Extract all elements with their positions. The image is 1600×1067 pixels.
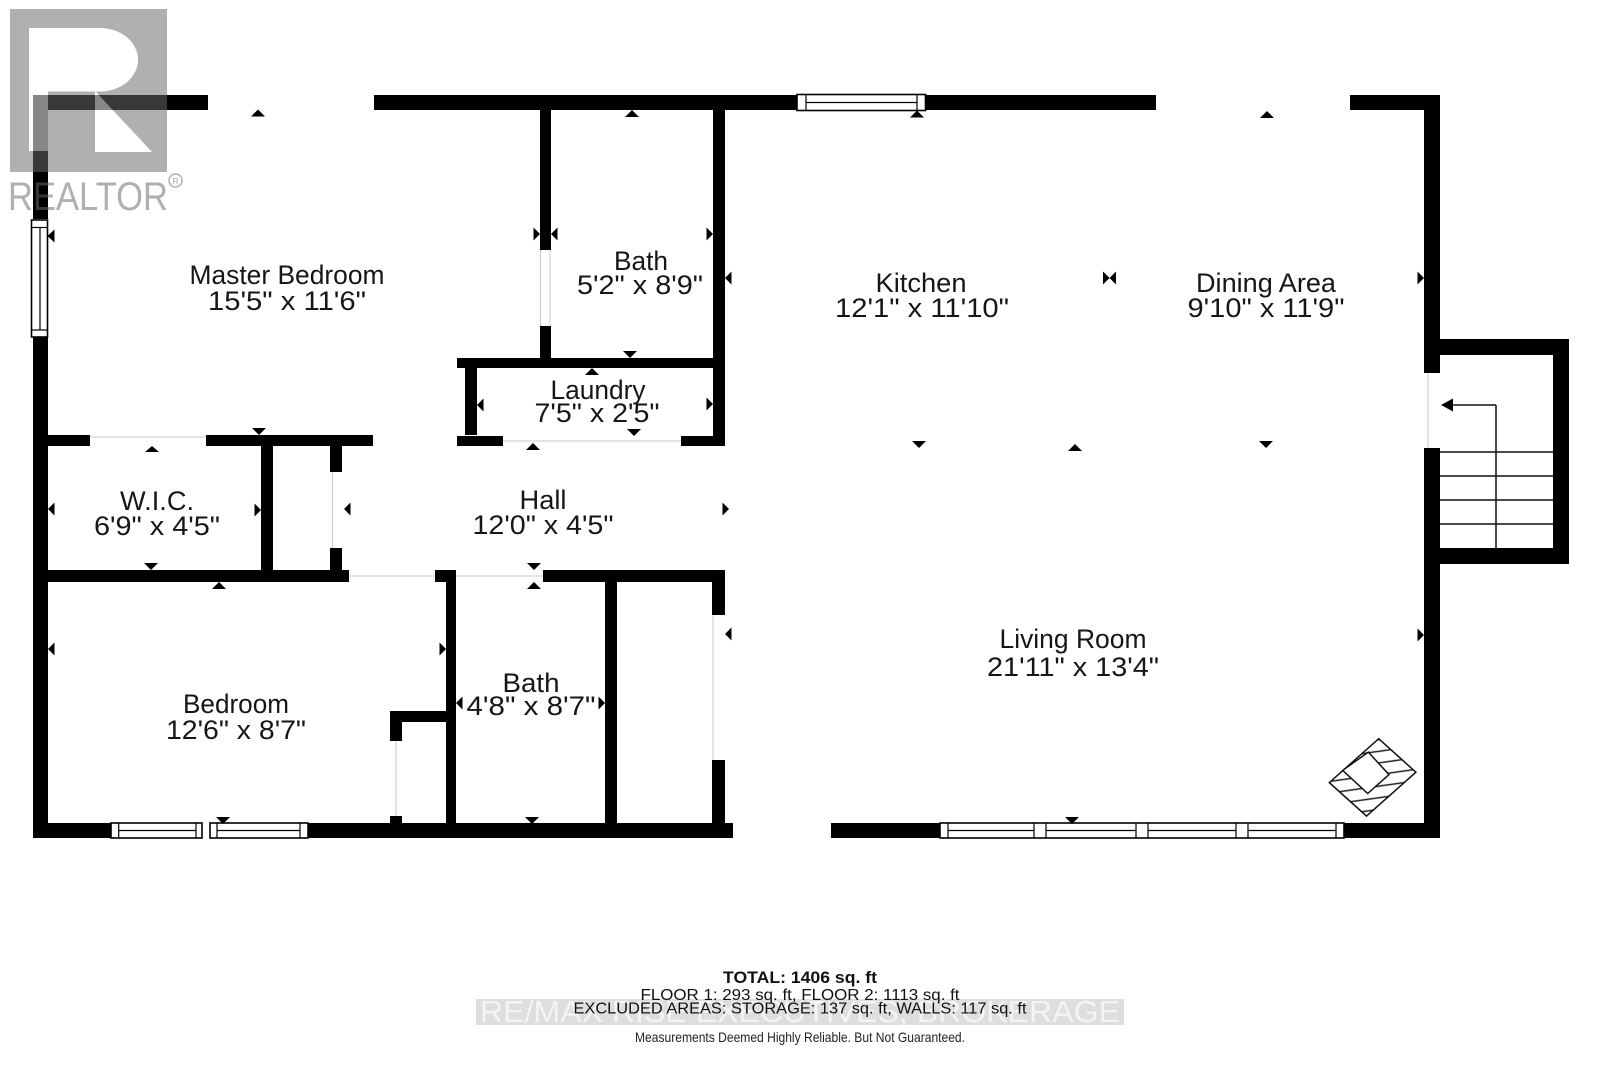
svg-text:EXCLUDED AREAS: STORAGE: 137 s: EXCLUDED AREAS: STORAGE: 137 sq. ft, WAL… — [574, 1001, 1028, 1018]
svg-text:21'11" x 13'4": 21'11" x 13'4" — [987, 652, 1159, 682]
svg-text:REALTOR: REALTOR — [8, 175, 168, 219]
svg-text:Living Room: Living Room — [1000, 624, 1147, 654]
svg-text:15'5" x 11'6": 15'5" x 11'6" — [208, 286, 366, 316]
svg-text:5'2" x 8'9": 5'2" x 8'9" — [577, 270, 703, 300]
svg-text:9'10" x 11'9": 9'10" x 11'9" — [1188, 293, 1345, 323]
svg-text:12'1" x 11'10": 12'1" x 11'10" — [835, 293, 1009, 323]
svg-text:12'0" x 4'5": 12'0" x 4'5" — [473, 510, 614, 540]
svg-text:4'8" x 8'7": 4'8" x 8'7" — [467, 691, 596, 721]
svg-text:TOTAL: 1406 sq. ft: TOTAL: 1406 sq. ft — [723, 968, 877, 987]
svg-text:6'9" x 4'5": 6'9" x 4'5" — [94, 511, 220, 541]
svg-text:12'6" x 8'7": 12'6" x 8'7" — [166, 715, 306, 745]
svg-text:R: R — [172, 177, 179, 187]
svg-text:7'5" x 2'5": 7'5" x 2'5" — [535, 398, 660, 428]
svg-text:Measurements Deemed Highly Rel: Measurements Deemed Highly Reliable. But… — [635, 1029, 965, 1045]
